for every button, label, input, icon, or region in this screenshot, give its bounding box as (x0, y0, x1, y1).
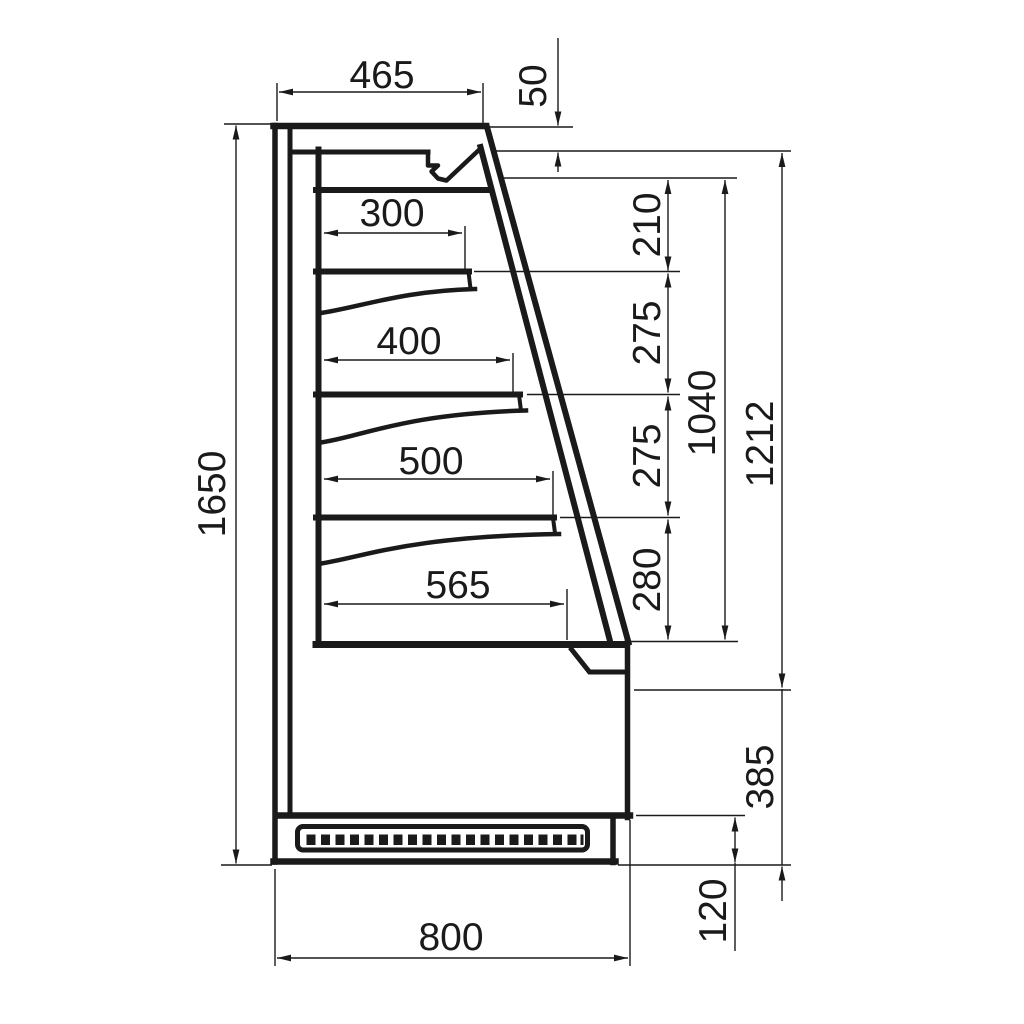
dim-label-overall-height: 1650 (191, 451, 234, 538)
grille-slot (423, 835, 432, 846)
extension-lines (221, 83, 791, 966)
ventilation-grille-slots (307, 835, 584, 846)
grille-slot (452, 835, 461, 846)
dim-label-spacing-bottom: 280 (626, 547, 669, 612)
front-bumper-notch (570, 648, 625, 673)
dim-label-interior-height: 1040 (681, 370, 724, 457)
shelf-underside-curve (318, 289, 475, 314)
plinth (274, 817, 616, 863)
dim-label-spacing-1: 275 (626, 300, 669, 365)
dim-label-plinth-height: 120 (692, 878, 735, 943)
dim-label-shelf2-depth: 400 (376, 320, 441, 363)
dim-label-lower-front-height: 385 (739, 744, 782, 809)
grille-slot (539, 835, 548, 846)
grille-slot-partial (581, 835, 584, 846)
canopy-clip-profile (428, 149, 481, 181)
dim-label-shelf3-depth: 500 (398, 440, 463, 483)
grille-slot (510, 835, 519, 846)
front-outer-slant (487, 127, 629, 643)
grille-slot (350, 835, 359, 846)
grille-slot (365, 835, 374, 846)
shelf-front-lip (469, 272, 471, 289)
dim-label-front-height: 1212 (739, 401, 782, 488)
dim-label-spacing-top: 210 (626, 192, 669, 257)
grille-slot (437, 835, 446, 846)
front-glass (481, 127, 629, 643)
back-panel (275, 126, 319, 863)
shelf-2 (316, 395, 526, 444)
shelf-front-lip (519, 395, 521, 411)
dim-label-canopy-drop: 50 (512, 64, 555, 107)
grille-slot (379, 835, 388, 846)
shelf-3 (316, 518, 559, 565)
shelf-underside-curve (318, 534, 559, 564)
dim-label-spacing-2: 275 (626, 423, 669, 488)
grille-slot (394, 835, 403, 846)
dim-label-shelf1-depth: 300 (359, 192, 424, 235)
dim-label-top-depth: 465 (349, 54, 414, 97)
grille-slot (336, 835, 345, 846)
cabinet-section-outline (274, 126, 631, 863)
grille-slot (481, 835, 490, 846)
shelf-1 (316, 272, 475, 314)
dim-label-floor-depth: 565 (425, 564, 490, 607)
grille-slot (553, 835, 562, 846)
grille-slot (408, 835, 417, 846)
shelf-front-lip (553, 518, 555, 533)
grille-slot (568, 835, 577, 846)
grille-slot (524, 835, 533, 846)
grille-slot (321, 835, 330, 846)
grille-slot (495, 835, 504, 846)
dim-label-overall-depth: 800 (418, 916, 483, 959)
grille-slot (466, 835, 475, 846)
grille-slot (307, 835, 316, 846)
base-section (276, 642, 630, 818)
top-canopy (274, 126, 491, 190)
technical-drawing-canvas: 465 300 400 500 565 800 1650 50 210 275 … (0, 0, 1024, 1024)
shelf-underside-curve (318, 411, 526, 444)
